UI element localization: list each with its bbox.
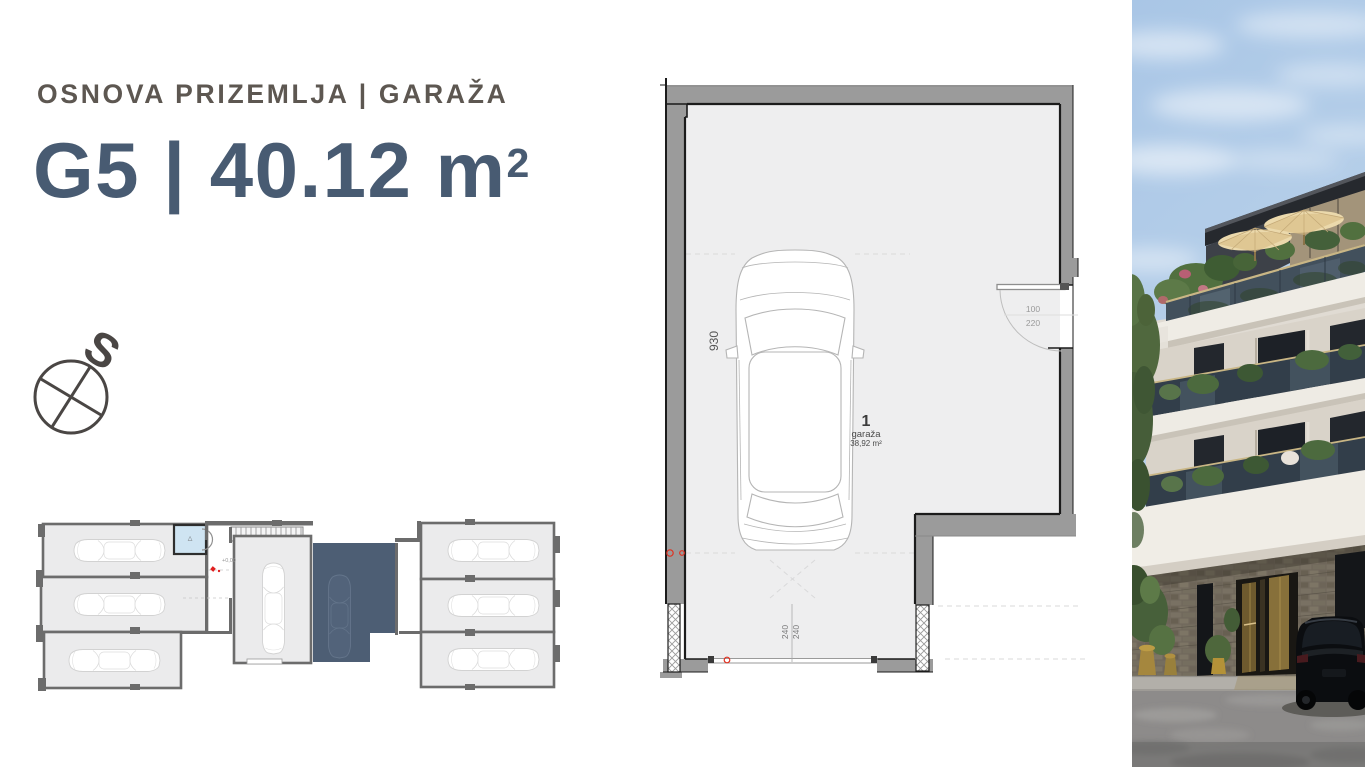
svg-text:1: 1	[862, 413, 871, 430]
svg-text:240: 240	[780, 625, 790, 639]
svg-text:+0,00: +0,00	[222, 558, 236, 564]
svg-text:220: 220	[1026, 318, 1040, 328]
svg-text:930: 930	[707, 331, 721, 351]
svg-text:38,92 m²: 38,92 m²	[850, 439, 882, 448]
svg-text:240: 240	[791, 625, 801, 639]
svg-text:S: S	[75, 319, 130, 381]
svg-text:△: △	[188, 536, 193, 542]
svg-text:100: 100	[1026, 304, 1040, 314]
